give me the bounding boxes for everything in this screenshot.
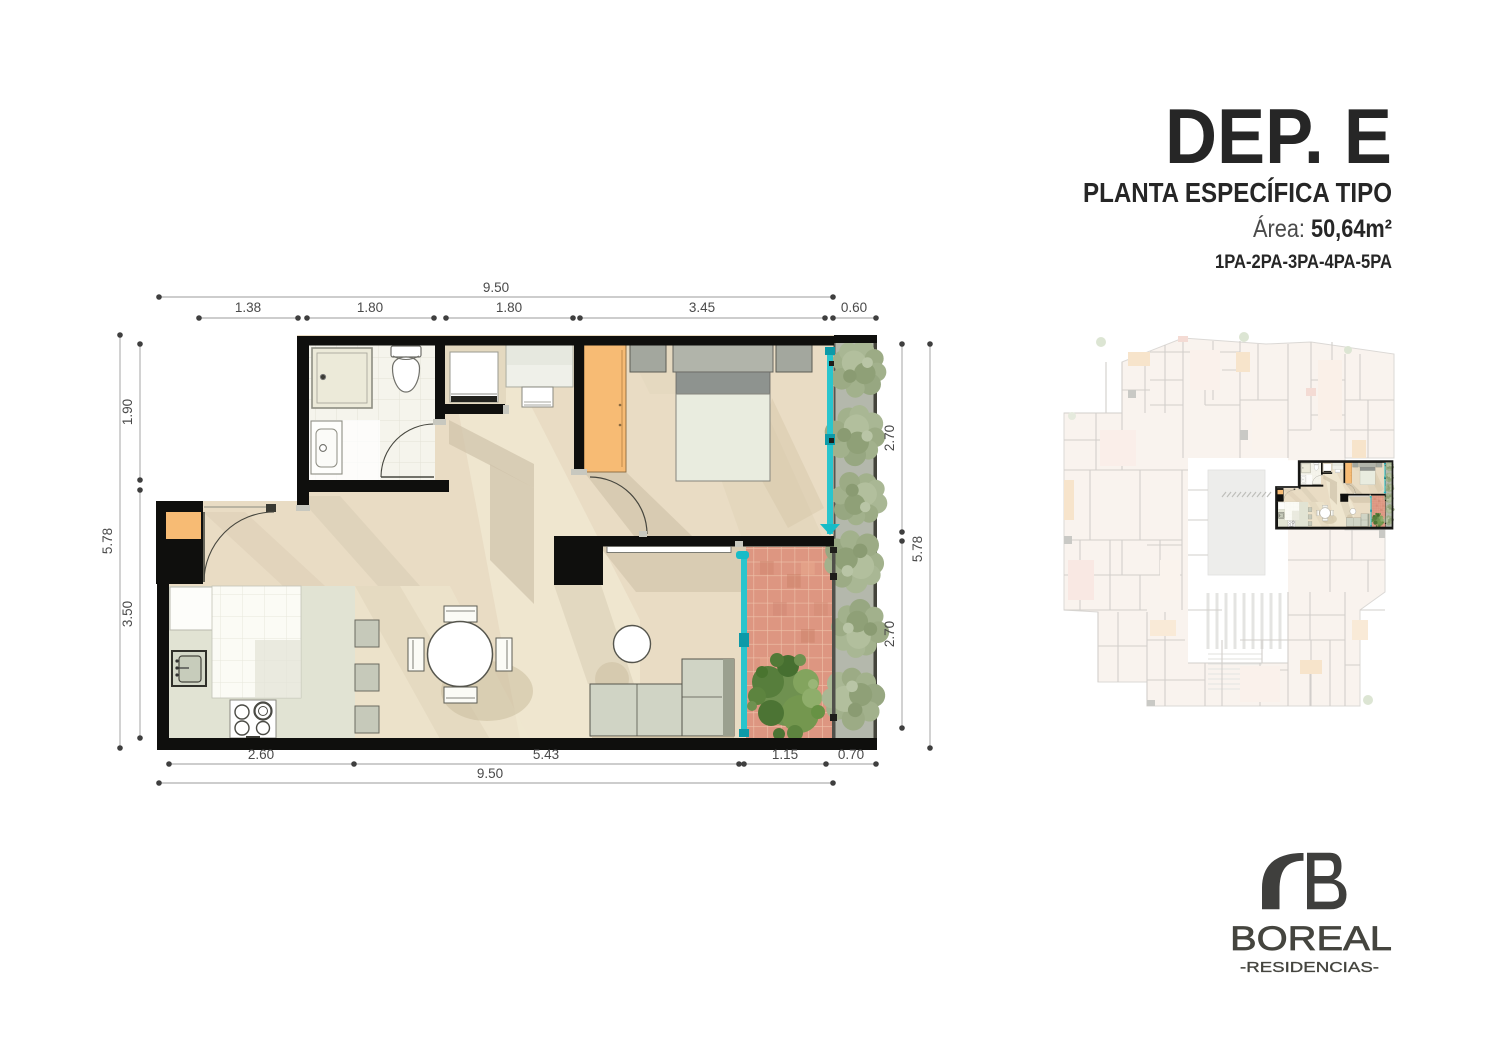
svg-text:1.38: 1.38 [235,300,261,315]
svg-text:0.70: 0.70 [838,747,864,762]
svg-text:5.78: 5.78 [100,528,115,554]
svg-text:-RESIDENCIAS-: -RESIDENCIAS- [1240,960,1379,976]
svg-text:BOREAL: BOREAL [1230,920,1392,958]
svg-text:1.80: 1.80 [496,300,522,315]
svg-text:3.50: 3.50 [120,601,135,627]
svg-text:5.43: 5.43 [533,747,559,762]
svg-text:1.80: 1.80 [357,300,383,315]
svg-text:3.45: 3.45 [689,300,715,315]
svg-text:PLANTA ESPECÍFICA TIPO: PLANTA ESPECÍFICA TIPO [1083,177,1392,208]
svg-text:2.70: 2.70 [882,425,897,451]
svg-text:2.70: 2.70 [882,621,897,647]
svg-text:0.60: 0.60 [841,300,867,315]
svg-text:1PA-2PA-3PA-4PA-5PA: 1PA-2PA-3PA-4PA-5PA [1215,251,1392,273]
svg-text:Área: 50,64m²: Área: 50,64m² [1253,214,1392,243]
svg-text:1.15: 1.15 [772,747,798,762]
svg-text:DEP. E: DEP. E [1165,92,1392,180]
svg-text:5.78: 5.78 [910,536,925,562]
svg-text:1.90: 1.90 [120,399,135,425]
svg-text:9.50: 9.50 [477,766,503,781]
svg-text:9.50: 9.50 [483,280,509,295]
svg-text:2.60: 2.60 [248,747,274,762]
